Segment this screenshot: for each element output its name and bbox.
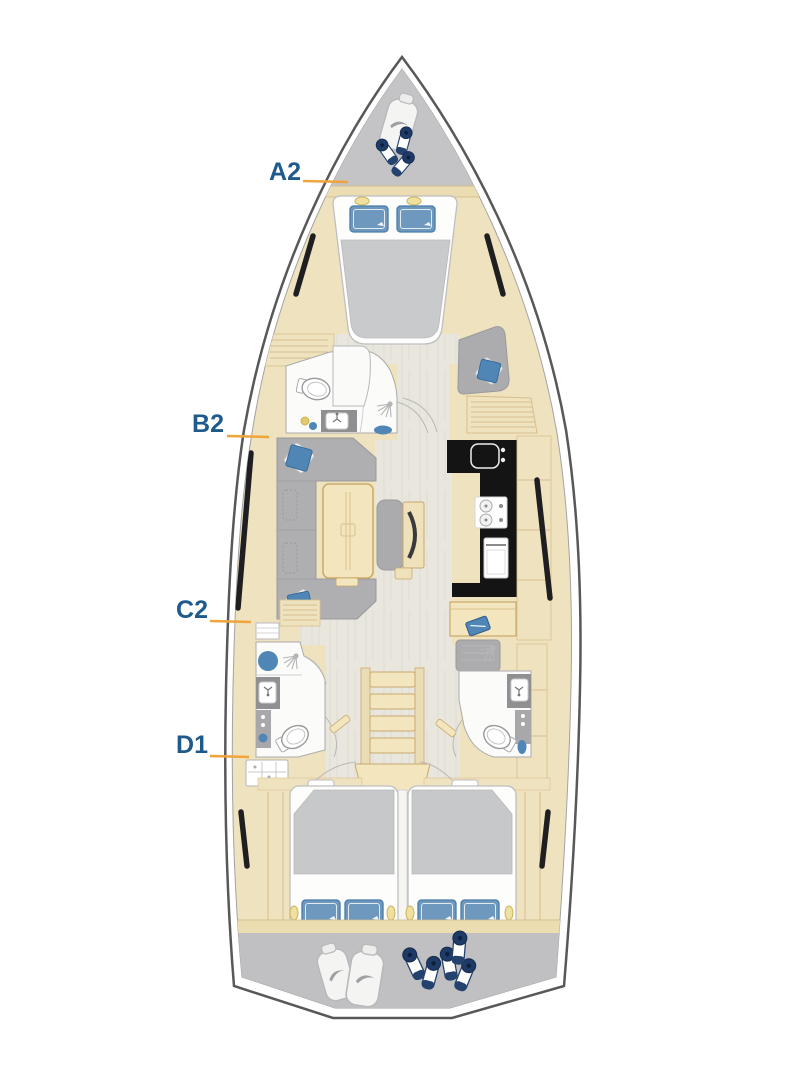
callout-line-c2 (210, 621, 251, 622)
bow-deck (288, 55, 518, 197)
bath-mat (518, 740, 527, 754)
reading-light-icon (505, 906, 513, 920)
stair-step (370, 672, 415, 687)
companionway-stairs (355, 668, 430, 793)
accessory (301, 417, 309, 425)
v-berth-blanket (341, 240, 450, 338)
aft-cabin-port (290, 786, 398, 930)
cabin-label-b2: B2 (160, 412, 224, 437)
forward-cabin (333, 196, 457, 344)
vanity (256, 623, 279, 639)
callout-line-d1 (210, 756, 249, 757)
reading-light-icon (355, 197, 369, 205)
wardrobe-pod (333, 346, 370, 406)
stair-step (370, 716, 415, 731)
floorplan-drawing (0, 0, 810, 1080)
stair-step (370, 694, 415, 709)
reading-light-icon (406, 906, 414, 920)
cabin-label-c2: C2 (144, 598, 208, 623)
bath-mat (374, 426, 392, 435)
bath-mat (258, 651, 278, 671)
side-seat (377, 500, 403, 570)
callout-line-a2 (303, 181, 348, 182)
pillow-icon (397, 206, 435, 232)
cabin-label-d1: D1 (144, 733, 208, 758)
stern-shelf (228, 920, 583, 934)
reading-light-icon (387, 906, 395, 920)
cushion (477, 359, 501, 383)
yacht-floorplan-figure: A2 B2 C2 D1 (0, 0, 810, 1080)
pillow-icon (350, 206, 388, 232)
blanket (294, 790, 394, 874)
accessory (309, 422, 317, 430)
cabin-label-a2: A2 (237, 160, 301, 185)
cabin-divider (398, 790, 407, 930)
aft-cabin-starboard (406, 786, 516, 930)
blanket (412, 790, 512, 874)
stair-step (370, 738, 415, 753)
reading-light-icon (407, 197, 421, 205)
callout-line-b2 (227, 436, 269, 437)
reading-light-icon (290, 906, 298, 920)
salon-table (323, 484, 373, 578)
